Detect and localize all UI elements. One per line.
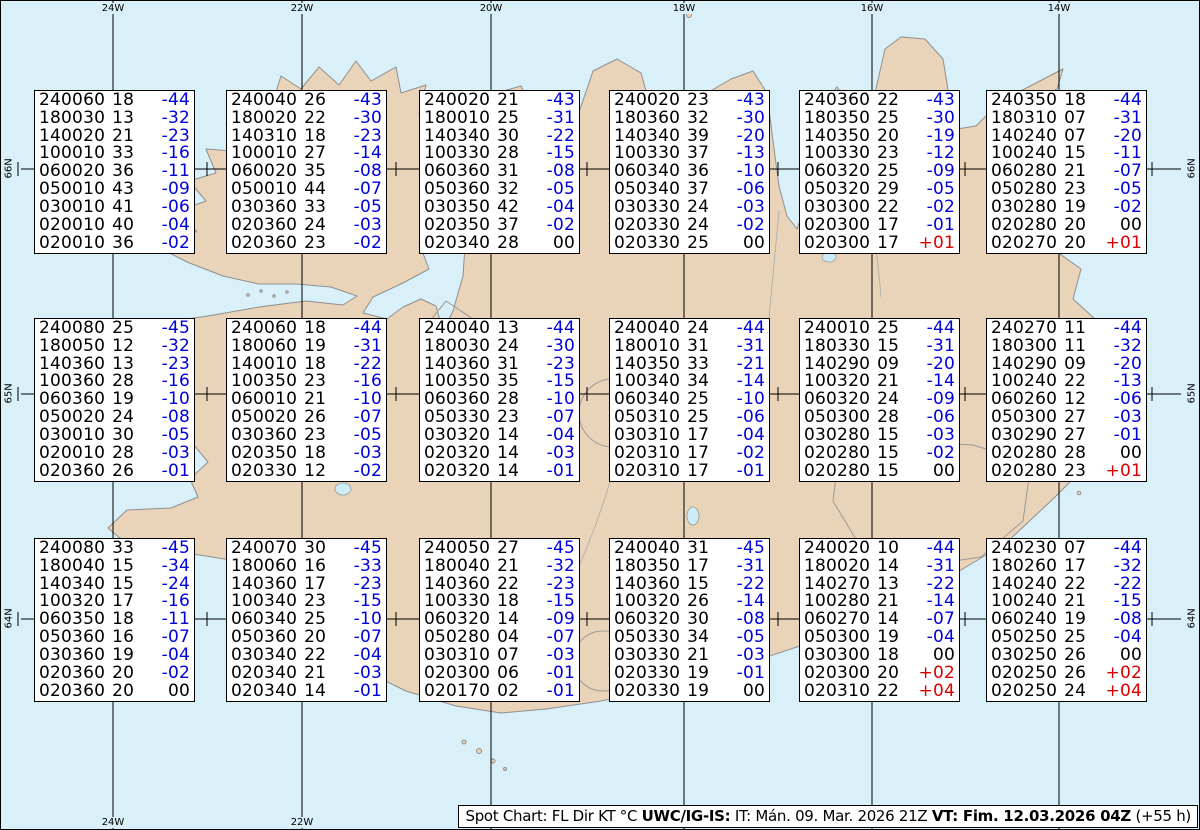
level-direction-value: 240270 bbox=[991, 320, 1057, 338]
temperature-value: -45 bbox=[162, 320, 190, 338]
temperature-value: -32 bbox=[162, 338, 190, 356]
caption-prefix: Spot Chart: FL Dir KT °C bbox=[465, 807, 641, 825]
level-direction-value: 020010 bbox=[39, 217, 105, 235]
level-direction-value: 020270 bbox=[991, 235, 1057, 253]
level-direction-value: 240080 bbox=[39, 540, 105, 558]
spot-box-r2c6: 24027011-4418030011-3214029009-201002402… bbox=[986, 318, 1147, 482]
temperature-value: -01 bbox=[1114, 427, 1142, 445]
level-direction-value: 180260 bbox=[991, 558, 1057, 576]
spot-row: 24002010-44 bbox=[804, 540, 955, 558]
level-direction-value: 020340 bbox=[231, 683, 297, 701]
wind-speed-value: 16 bbox=[304, 558, 326, 576]
level-direction-value: 050310 bbox=[614, 409, 680, 427]
temperature-value: -03 bbox=[547, 647, 575, 665]
spot-row: 03001030-05 bbox=[39, 427, 190, 445]
temperature-value: -02 bbox=[354, 235, 382, 253]
temperature-value: -06 bbox=[927, 409, 955, 427]
temperature-value: -04 bbox=[547, 427, 575, 445]
temperature-value: -05 bbox=[162, 427, 190, 445]
spot-row: 05033023-07 bbox=[424, 409, 575, 427]
spot-row: 02031022+04 bbox=[804, 683, 955, 701]
caption-valid-time: VT: Fim. 12.03.2026 04Z bbox=[932, 807, 1131, 825]
spot-chart: 24006018-4418003013-3214002021-231000103… bbox=[0, 0, 1200, 830]
temperature-value: -07 bbox=[354, 629, 382, 647]
wind-speed-value: 29 bbox=[877, 181, 899, 199]
temperature-value: -07 bbox=[162, 629, 190, 647]
lat-label-left-64n: 64N bbox=[4, 608, 15, 630]
level-direction-value: 020330 bbox=[614, 683, 680, 701]
lon-label-top-20w: 20W bbox=[479, 3, 504, 14]
temperature-value: -30 bbox=[737, 110, 765, 128]
spot-box-r2c5: 24001025-4418033015-3114029009-201003202… bbox=[799, 318, 960, 482]
level-direction-value: 180040 bbox=[424, 558, 490, 576]
temperature-value: -03 bbox=[547, 445, 575, 463]
spot-box-r2c4: 24004024-4418001031-3114035033-211003403… bbox=[609, 318, 770, 482]
temperature-value: -05 bbox=[927, 181, 955, 199]
level-direction-value: 030280 bbox=[991, 199, 1057, 217]
spot-box-r1c1: 24006018-4418003013-3214002021-231000103… bbox=[34, 90, 195, 254]
level-direction-value: 240040 bbox=[614, 540, 680, 558]
temperature-value: -05 bbox=[547, 181, 575, 199]
temperature-value: -08 bbox=[162, 409, 190, 427]
lon-label-top-22w: 22W bbox=[290, 3, 315, 14]
level-direction-value: 030250 bbox=[991, 647, 1057, 665]
spot-row: 02025024+04 bbox=[991, 683, 1142, 701]
temperature-value: -33 bbox=[354, 558, 382, 576]
temperature-value: -01 bbox=[547, 683, 575, 701]
wind-speed-value: 25 bbox=[1064, 629, 1086, 647]
temperature-value: -45 bbox=[547, 540, 575, 558]
lon-label-top-18w: 18W bbox=[672, 3, 697, 14]
lon-label-top-24w: 24W bbox=[101, 3, 126, 14]
level-direction-value: 240040 bbox=[424, 320, 490, 338]
spot-row: 24036022-43 bbox=[804, 92, 955, 110]
spot-row: 02030017-01 bbox=[804, 217, 955, 235]
temperature-value: -04 bbox=[354, 647, 382, 665]
lon-label-top-16w: 16W bbox=[860, 3, 885, 14]
temperature-value: -45 bbox=[354, 540, 382, 558]
level-direction-value: 030010 bbox=[39, 199, 105, 217]
wind-speed-value: 36 bbox=[112, 235, 134, 253]
temperature-value: -30 bbox=[354, 110, 382, 128]
wind-speed-value: 24 bbox=[497, 338, 519, 356]
spot-row: 02036023-02 bbox=[231, 235, 382, 253]
level-direction-value: 020310 bbox=[614, 463, 680, 481]
temperature-value: -02 bbox=[737, 217, 765, 235]
temperature-value: 00 bbox=[1120, 217, 1142, 235]
level-direction-value: 030360 bbox=[231, 427, 297, 445]
wind-speed-value: 22 bbox=[304, 647, 326, 665]
temperature-value: -43 bbox=[354, 92, 382, 110]
temperature-value: -44 bbox=[927, 320, 955, 338]
level-direction-value: 240040 bbox=[614, 320, 680, 338]
temperature-value: -03 bbox=[927, 427, 955, 445]
temperature-value: -05 bbox=[1114, 181, 1142, 199]
temperature-value: 00 bbox=[553, 235, 575, 253]
temperature-value: -07 bbox=[354, 409, 382, 427]
temperature-value: -32 bbox=[1114, 338, 1142, 356]
level-direction-value: 030300 bbox=[804, 199, 870, 217]
wind-speed-value: 21 bbox=[687, 647, 709, 665]
spot-row: 03036033-05 bbox=[231, 199, 382, 217]
wind-speed-value: 17 bbox=[1064, 558, 1086, 576]
spot-row: 0202801500 bbox=[804, 463, 955, 481]
wind-speed-value: 15 bbox=[877, 427, 899, 445]
level-direction-value: 020280 bbox=[804, 445, 870, 463]
level-direction-value: 180350 bbox=[804, 110, 870, 128]
wind-speed-value: 24 bbox=[687, 199, 709, 217]
temperature-value: +01 bbox=[1106, 235, 1142, 253]
temperature-value: 00 bbox=[933, 647, 955, 665]
spot-row: 02025026+02 bbox=[991, 665, 1142, 683]
level-direction-value: 240060 bbox=[39, 92, 105, 110]
wind-speed-value: 31 bbox=[687, 540, 709, 558]
wind-speed-value: 19 bbox=[304, 338, 326, 356]
wind-speed-value: 22 bbox=[304, 110, 326, 128]
level-direction-value: 050330 bbox=[614, 629, 680, 647]
wind-speed-value: 27 bbox=[497, 540, 519, 558]
level-direction-value: 240080 bbox=[39, 320, 105, 338]
level-direction-value: 180010 bbox=[614, 338, 680, 356]
temperature-value: -05 bbox=[354, 199, 382, 217]
wind-speed-value: 18 bbox=[304, 320, 326, 338]
spot-row: 05033034-05 bbox=[614, 629, 765, 647]
level-direction-value: 240020 bbox=[804, 540, 870, 558]
level-direction-value: 240070 bbox=[231, 540, 297, 558]
spot-row: 24023007-44 bbox=[991, 540, 1142, 558]
wind-speed-value: 19 bbox=[877, 629, 899, 647]
temperature-value: -04 bbox=[737, 427, 765, 445]
temperature-value: -03 bbox=[737, 647, 765, 665]
temperature-value: +02 bbox=[919, 665, 955, 683]
level-direction-value: 050360 bbox=[424, 181, 490, 199]
lon-label-bottom-22w: 22W bbox=[290, 817, 315, 828]
spot-row: 24004013-44 bbox=[424, 320, 575, 338]
wind-speed-value: 19 bbox=[112, 647, 134, 665]
wind-speed-value: 25 bbox=[877, 320, 899, 338]
temperature-value: -32 bbox=[162, 110, 190, 128]
spot-row: 05036020-07 bbox=[231, 629, 382, 647]
wind-speed-value: 02 bbox=[497, 683, 519, 701]
temperature-value: -43 bbox=[927, 92, 955, 110]
spot-row: 02030017+01 bbox=[804, 235, 955, 253]
caption-product: UWC/IG-IS: bbox=[642, 807, 731, 825]
spot-row: 02034021-03 bbox=[231, 665, 382, 683]
level-direction-value: 050320 bbox=[804, 181, 870, 199]
spot-row: 24002023-43 bbox=[614, 92, 765, 110]
level-direction-value: 030310 bbox=[614, 427, 680, 445]
temperature-value: -02 bbox=[162, 665, 190, 683]
wind-speed-value: 20 bbox=[112, 665, 134, 683]
level-direction-value: 050250 bbox=[991, 629, 1057, 647]
spot-row: 03031017-04 bbox=[614, 427, 765, 445]
spot-row: 03036023-05 bbox=[231, 427, 382, 445]
temperature-value: -03 bbox=[354, 217, 382, 235]
spot-row: 24004026-43 bbox=[231, 92, 382, 110]
level-direction-value: 240060 bbox=[231, 320, 297, 338]
spot-box-r2c3: 24004013-4418003024-3014036031-231003503… bbox=[419, 318, 580, 482]
temperature-value: -31 bbox=[1114, 110, 1142, 128]
temperature-value: -09 bbox=[162, 181, 190, 199]
wind-speed-value: 25 bbox=[877, 110, 899, 128]
spot-box-r1c3: 24002021-4318001025-3114034030-221003302… bbox=[419, 90, 580, 254]
level-direction-value: 020330 bbox=[614, 665, 680, 683]
spot-row: 18026017-32 bbox=[991, 558, 1142, 576]
spot-row: 24004031-45 bbox=[614, 540, 765, 558]
temperature-value: -03 bbox=[354, 665, 382, 683]
spot-row: 03029027-01 bbox=[991, 427, 1142, 445]
wind-speed-value: 23 bbox=[687, 92, 709, 110]
temperature-value: -44 bbox=[547, 320, 575, 338]
wind-speed-value: 14 bbox=[304, 683, 326, 701]
spot-row: 24001025-44 bbox=[804, 320, 955, 338]
wind-speed-value: 16 bbox=[112, 629, 134, 647]
spot-row: 05030027-03 bbox=[991, 409, 1142, 427]
wind-speed-value: 22 bbox=[877, 199, 899, 217]
spot-row: 18001031-31 bbox=[614, 338, 765, 356]
temperature-value: +02 bbox=[1106, 665, 1142, 683]
spot-row: 02033012-02 bbox=[231, 463, 382, 481]
spot-box-r1c2: 24004026-4318002022-3014031018-231000102… bbox=[226, 90, 387, 254]
temperature-value: -31 bbox=[737, 558, 765, 576]
spot-row: 24006018-44 bbox=[231, 320, 382, 338]
spot-row: 05036016-07 bbox=[39, 629, 190, 647]
temperature-value: -30 bbox=[927, 110, 955, 128]
spot-box-r3c1: 24008033-4518004015-3414034015-241003201… bbox=[34, 538, 195, 702]
temperature-value: -06 bbox=[162, 199, 190, 217]
wind-speed-value: 14 bbox=[877, 558, 899, 576]
wind-speed-value: 26 bbox=[1064, 665, 1086, 683]
spot-row: 05031025-06 bbox=[614, 409, 765, 427]
wind-speed-value: 25 bbox=[687, 409, 709, 427]
temperature-value: -06 bbox=[737, 409, 765, 427]
wind-speed-value: 23 bbox=[1064, 463, 1086, 481]
wind-speed-value: 23 bbox=[304, 235, 326, 253]
level-direction-value: 030340 bbox=[231, 647, 297, 665]
spot-box-r2c1: 24008025-4518005012-3214036013-231003602… bbox=[34, 318, 195, 482]
wind-speed-value: 33 bbox=[304, 199, 326, 217]
lon-label-bottom-24w: 24W bbox=[101, 817, 126, 828]
temperature-value: -02 bbox=[354, 463, 382, 481]
spot-box-r3c6: 24023007-4418026017-3214024022-221002402… bbox=[986, 538, 1147, 702]
level-direction-value: 020360 bbox=[231, 235, 297, 253]
level-direction-value: 240020 bbox=[614, 92, 680, 110]
temperature-value: -03 bbox=[737, 199, 765, 217]
spot-row: 03028019-02 bbox=[991, 199, 1142, 217]
spot-row: 24006018-44 bbox=[39, 92, 190, 110]
level-direction-value: 020010 bbox=[39, 445, 105, 463]
level-direction-value: 020360 bbox=[39, 665, 105, 683]
temperature-value: -43 bbox=[737, 92, 765, 110]
spot-row: 05030019-04 bbox=[804, 629, 955, 647]
level-direction-value: 020170 bbox=[424, 683, 490, 701]
wind-speed-value: 15 bbox=[877, 463, 899, 481]
wind-speed-value: 17 bbox=[687, 427, 709, 445]
spot-row: 03036019-04 bbox=[39, 647, 190, 665]
wind-speed-value: 41 bbox=[112, 199, 134, 217]
wind-speed-value: 25 bbox=[497, 110, 519, 128]
wind-speed-value: 17 bbox=[687, 463, 709, 481]
temperature-value: -01 bbox=[737, 665, 765, 683]
spot-row: 18030011-32 bbox=[991, 338, 1142, 356]
wind-speed-value: 23 bbox=[1064, 181, 1086, 199]
temperature-value: -32 bbox=[1114, 558, 1142, 576]
spot-row: 02032014-01 bbox=[424, 463, 575, 481]
level-direction-value: 020280 bbox=[991, 217, 1057, 235]
level-direction-value: 020250 bbox=[991, 665, 1057, 683]
level-direction-value: 020320 bbox=[424, 445, 490, 463]
wind-speed-value: 26 bbox=[112, 463, 134, 481]
wind-speed-value: 14 bbox=[497, 427, 519, 445]
wind-speed-value: 28 bbox=[497, 235, 519, 253]
spot-row: 02028015-02 bbox=[804, 445, 955, 463]
level-direction-value: 030360 bbox=[39, 647, 105, 665]
level-direction-value: 050360 bbox=[39, 629, 105, 647]
spot-row: 24008025-45 bbox=[39, 320, 190, 338]
spot-row: 0203402800 bbox=[424, 235, 575, 253]
spot-row: 18006016-33 bbox=[231, 558, 382, 576]
lat-label-right-64n: 64N bbox=[1187, 608, 1198, 630]
spot-row: 03028015-03 bbox=[804, 427, 955, 445]
spot-row: 02034014-01 bbox=[231, 683, 382, 701]
wind-speed-value: 24 bbox=[304, 217, 326, 235]
wind-speed-value: 21 bbox=[497, 558, 519, 576]
level-direction-value: 180020 bbox=[231, 110, 297, 128]
wind-speed-value: 26 bbox=[304, 92, 326, 110]
spot-row: 02031017-02 bbox=[614, 445, 765, 463]
temperature-value: -31 bbox=[927, 558, 955, 576]
level-direction-value: 020300 bbox=[804, 665, 870, 683]
temperature-value: -04 bbox=[162, 647, 190, 665]
level-direction-value: 240230 bbox=[991, 540, 1057, 558]
lat-label-left-66n: 66N bbox=[4, 158, 15, 180]
temperature-value: -31 bbox=[354, 338, 382, 356]
wind-speed-value: 28 bbox=[112, 445, 134, 463]
spot-row: 02030020+02 bbox=[804, 665, 955, 683]
wind-speed-value: 20 bbox=[877, 665, 899, 683]
spot-row: 18003024-30 bbox=[424, 338, 575, 356]
temperature-value: -04 bbox=[162, 217, 190, 235]
wind-speed-value: 07 bbox=[497, 647, 519, 665]
level-direction-value: 240350 bbox=[991, 92, 1057, 110]
wind-speed-value: 23 bbox=[304, 427, 326, 445]
temperature-value: -01 bbox=[547, 665, 575, 683]
temperature-value: -01 bbox=[737, 463, 765, 481]
spot-row: 18031007-31 bbox=[991, 110, 1142, 128]
temperature-value: -02 bbox=[737, 445, 765, 463]
level-direction-value: 020300 bbox=[804, 235, 870, 253]
spot-row: 24002021-43 bbox=[424, 92, 575, 110]
spot-row: 24004024-44 bbox=[614, 320, 765, 338]
level-direction-value: 180050 bbox=[39, 338, 105, 356]
spot-row: 18004015-34 bbox=[39, 558, 190, 576]
wind-speed-value: 20 bbox=[1064, 235, 1086, 253]
level-direction-value: 020310 bbox=[804, 683, 870, 701]
spot-row: 02036026-01 bbox=[39, 463, 190, 481]
level-direction-value: 030330 bbox=[614, 199, 680, 217]
spot-row: 02030006-01 bbox=[424, 665, 575, 683]
temperature-value: -31 bbox=[927, 338, 955, 356]
temperature-value: -45 bbox=[737, 540, 765, 558]
level-direction-value: 030300 bbox=[804, 647, 870, 665]
temperature-value: -03 bbox=[162, 445, 190, 463]
level-direction-value: 020300 bbox=[804, 217, 870, 235]
level-direction-value: 020310 bbox=[614, 445, 680, 463]
temperature-value: -05 bbox=[354, 427, 382, 445]
spot-row: 24035018-44 bbox=[991, 92, 1142, 110]
wind-speed-value: 18 bbox=[877, 647, 899, 665]
level-direction-value: 050300 bbox=[804, 629, 870, 647]
temperature-value: -01 bbox=[162, 463, 190, 481]
temperature-value: -44 bbox=[1114, 92, 1142, 110]
spot-row: 02028023+01 bbox=[991, 463, 1142, 481]
wind-speed-value: 26 bbox=[1064, 647, 1086, 665]
temperature-value: -30 bbox=[547, 338, 575, 356]
wind-speed-value: 13 bbox=[112, 110, 134, 128]
wind-speed-value: 24 bbox=[687, 320, 709, 338]
spot-row: 24007030-45 bbox=[231, 540, 382, 558]
level-direction-value: 030350 bbox=[424, 199, 490, 217]
level-direction-value: 180010 bbox=[424, 110, 490, 128]
level-direction-value: 030290 bbox=[991, 427, 1057, 445]
level-direction-value: 020010 bbox=[39, 235, 105, 253]
temperature-value: +01 bbox=[1106, 463, 1142, 481]
spot-row: 02035018-03 bbox=[231, 445, 382, 463]
temperature-value: -07 bbox=[354, 181, 382, 199]
temperature-value: 00 bbox=[168, 683, 190, 701]
level-direction-value: 020340 bbox=[231, 665, 297, 683]
level-direction-value: 180360 bbox=[614, 110, 680, 128]
wind-speed-value: 04 bbox=[497, 629, 519, 647]
temperature-value: -04 bbox=[927, 629, 955, 647]
level-direction-value: 050330 bbox=[424, 409, 490, 427]
level-direction-value: 020280 bbox=[991, 463, 1057, 481]
wind-speed-value: 30 bbox=[304, 540, 326, 558]
wind-speed-value: 37 bbox=[687, 181, 709, 199]
level-direction-value: 050340 bbox=[614, 181, 680, 199]
level-direction-value: 180300 bbox=[991, 338, 1057, 356]
caption-bar: Spot Chart: FL Dir KT °C UWC/IG-IS: IT: … bbox=[458, 805, 1198, 828]
temperature-value: -02 bbox=[927, 445, 955, 463]
temperature-value: -32 bbox=[547, 558, 575, 576]
spot-row: 18005012-32 bbox=[39, 338, 190, 356]
temperature-value: -44 bbox=[1114, 320, 1142, 338]
wind-speed-value: 31 bbox=[687, 338, 709, 356]
spot-row: 03033024-03 bbox=[614, 199, 765, 217]
temperature-value: 00 bbox=[743, 683, 765, 701]
wind-speed-value: 40 bbox=[112, 217, 134, 235]
wind-speed-value: 20 bbox=[304, 629, 326, 647]
temperature-value: 00 bbox=[1120, 445, 1142, 463]
spot-box-r3c5: 24002010-4418002014-3114027013-221002802… bbox=[799, 538, 960, 702]
spot-row: 03032014-04 bbox=[424, 427, 575, 445]
wind-speed-value: 18 bbox=[304, 445, 326, 463]
spot-row: 05002024-08 bbox=[39, 409, 190, 427]
level-direction-value: 180350 bbox=[614, 558, 680, 576]
spot-row: 02036020-02 bbox=[39, 665, 190, 683]
level-direction-value: 240360 bbox=[804, 92, 870, 110]
spot-row: 18033015-31 bbox=[804, 338, 955, 356]
spot-row: 18003013-32 bbox=[39, 110, 190, 128]
wind-speed-value: 34 bbox=[687, 629, 709, 647]
wind-speed-value: 18 bbox=[1064, 92, 1086, 110]
level-direction-value: 180040 bbox=[39, 558, 105, 576]
spot-row: 02001036-02 bbox=[39, 235, 190, 253]
level-direction-value: 020340 bbox=[424, 235, 490, 253]
level-direction-value: 020350 bbox=[424, 217, 490, 235]
spot-row: 05001044-07 bbox=[231, 181, 382, 199]
spot-row: 02033024-02 bbox=[614, 217, 765, 235]
